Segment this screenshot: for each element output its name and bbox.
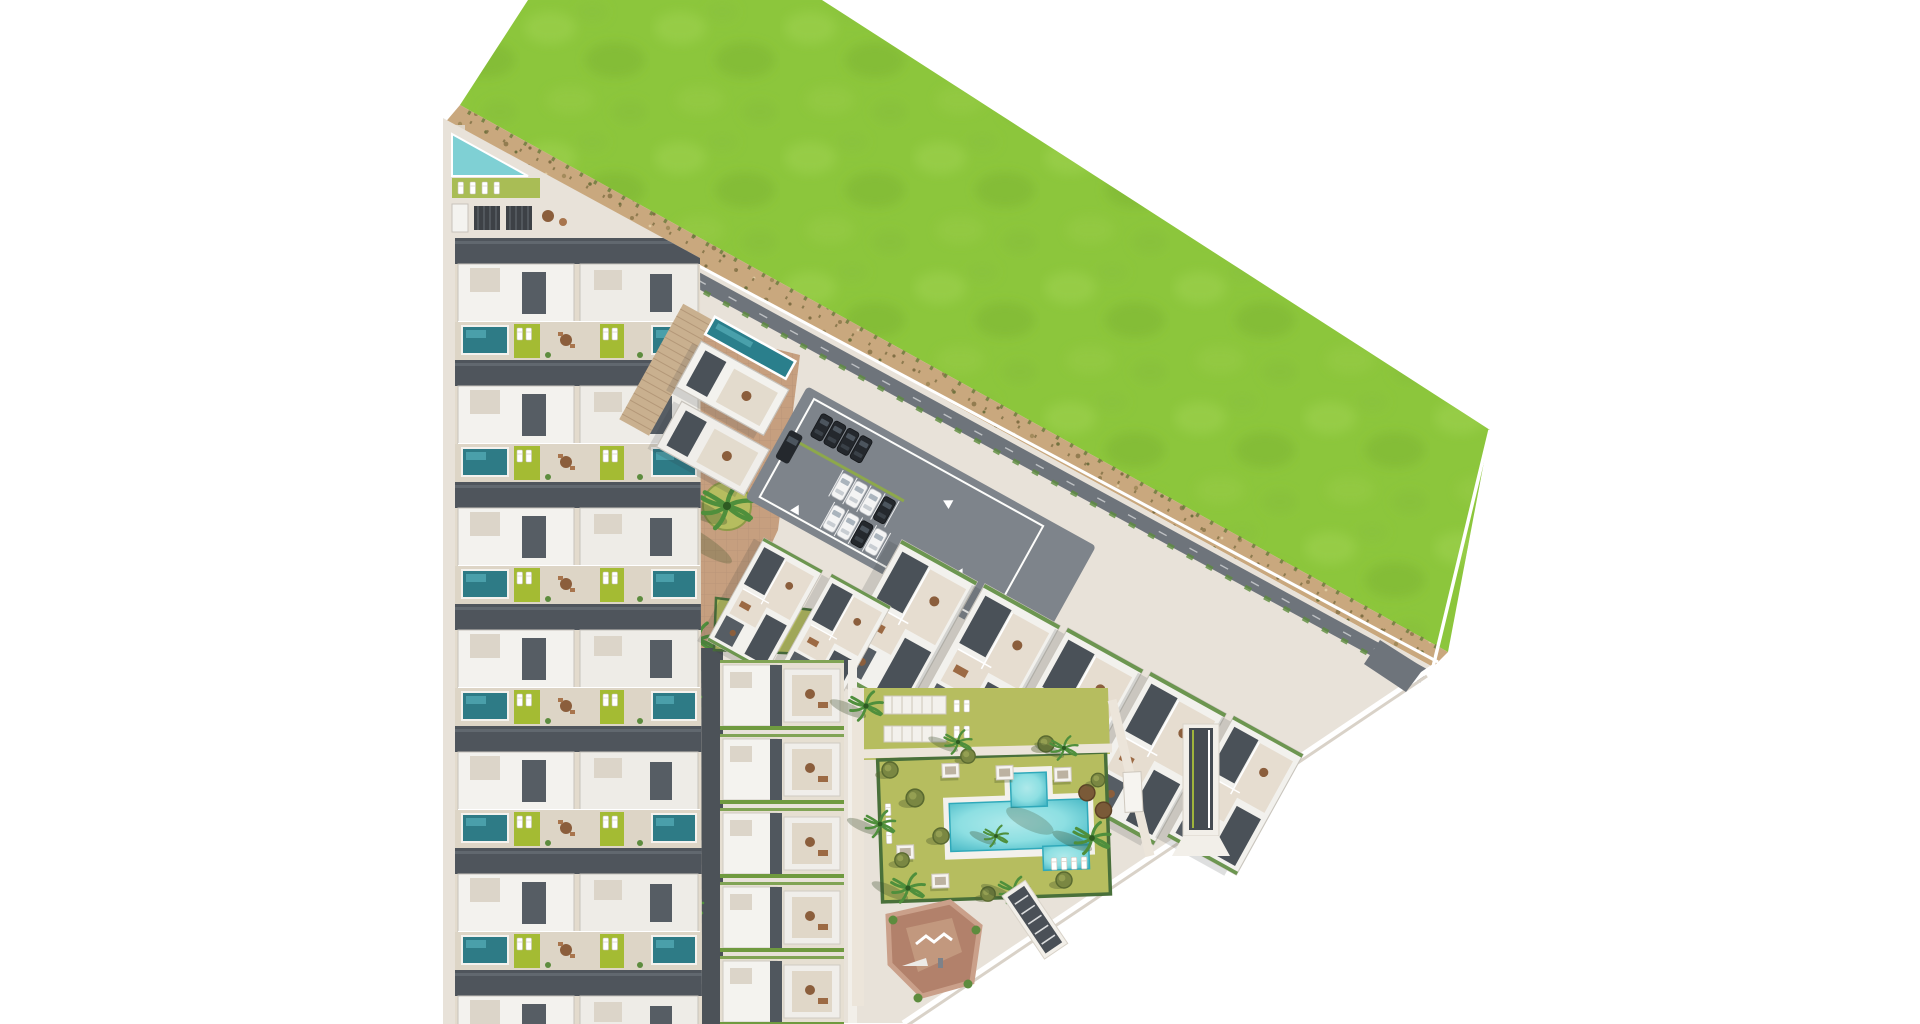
outdoor-table <box>542 210 554 222</box>
pool-house <box>1123 772 1143 813</box>
main-pool-lobe <box>1010 772 1047 807</box>
pergola <box>884 696 946 714</box>
play-figure <box>938 958 943 968</box>
pergola <box>506 206 532 230</box>
pool-kiosk <box>452 204 468 232</box>
pergola <box>474 206 500 230</box>
straw-parasol <box>1095 802 1112 819</box>
site-plan-page <box>0 0 1920 1024</box>
south-apartment-block <box>720 660 857 1024</box>
site-plan-canvas <box>0 0 1920 1024</box>
pool-garden <box>878 752 1115 902</box>
townhouse-field <box>443 118 703 1024</box>
